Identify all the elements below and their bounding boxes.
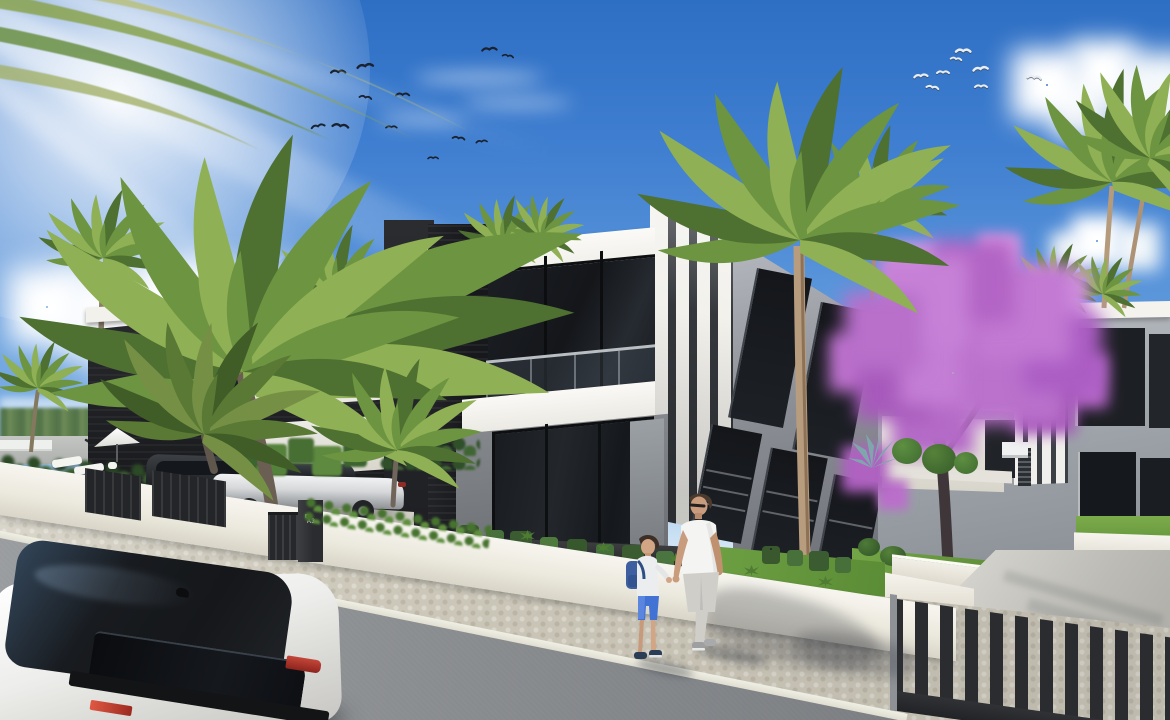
palm-fronds-overhang — [0, 0, 1170, 720]
villa-render-scene: A3 — [0, 0, 1170, 720]
